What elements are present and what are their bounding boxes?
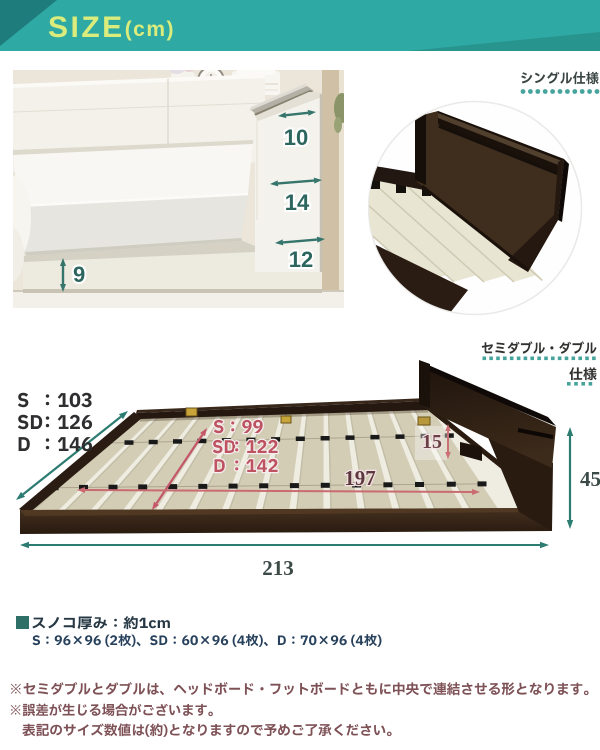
svg-text:10: 10: [284, 125, 308, 150]
svg-text:9: 9: [73, 262, 85, 287]
svg-text:45: 45: [580, 467, 600, 491]
svg-text:14: 14: [285, 190, 310, 215]
svg-text:213: 213: [262, 556, 294, 580]
svg-text:15: 15: [422, 431, 442, 453]
svg-text:12: 12: [289, 247, 313, 272]
svg-text:197: 197: [344, 466, 376, 490]
